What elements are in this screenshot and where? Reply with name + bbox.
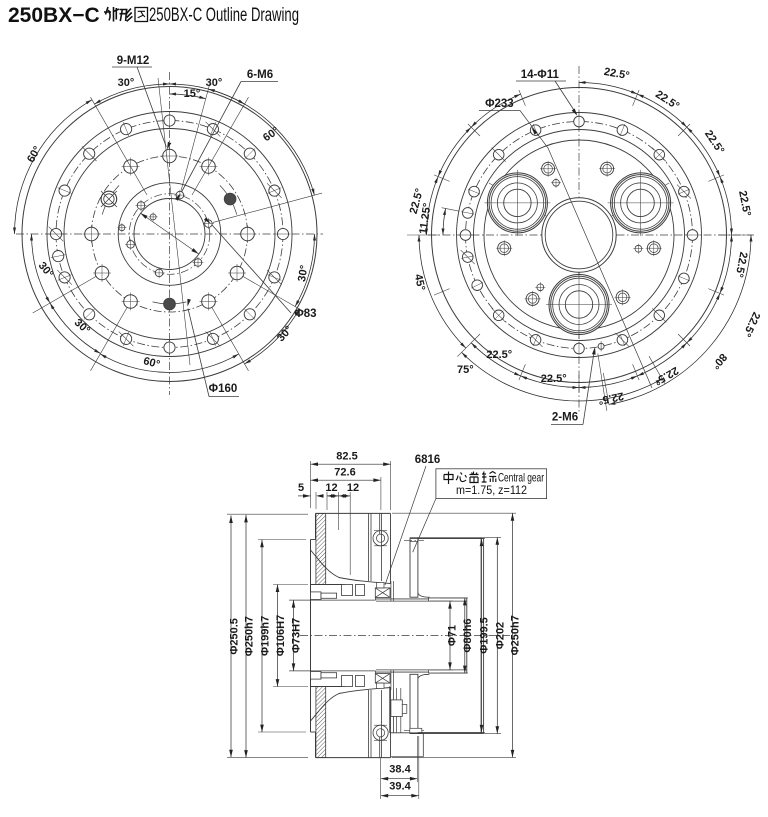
svg-text:82.5: 82.5 [336,451,357,463]
svg-text:14-Φ11: 14-Φ11 [521,69,560,81]
svg-text:250BX−C: 250BX−C [8,4,100,27]
svg-text:Φ73H7: Φ73H7 [291,618,303,653]
svg-text:Φ160: Φ160 [209,383,238,395]
svg-text:5: 5 [298,482,304,494]
svg-text:Φ199h7: Φ199h7 [260,616,272,656]
svg-text:75°: 75° [457,364,474,376]
svg-text:Φ202: Φ202 [494,622,506,649]
svg-text:Φ199.5: Φ199.5 [479,617,491,654]
svg-text:12: 12 [325,482,337,494]
svg-text:9-M12: 9-M12 [117,55,150,67]
svg-text:Φ83: Φ83 [294,308,316,320]
svg-text:30°: 30° [118,77,135,89]
svg-text:Φ80h6: Φ80h6 [462,618,474,652]
svg-text:Φ71: Φ71 [447,625,459,646]
svg-text:6816: 6816 [415,454,441,466]
svg-text:m=1.75, z=112: m=1.75, z=112 [456,483,527,497]
svg-text:Φ250h7: Φ250h7 [244,616,256,656]
svg-text:22.5°: 22.5° [541,373,567,385]
svg-text:30°: 30° [206,77,223,89]
svg-text:22.5°: 22.5° [486,349,512,361]
svg-text:12: 12 [347,482,359,494]
svg-text:39.4: 39.4 [389,781,411,793]
svg-text:Φ250.5: Φ250.5 [229,618,241,655]
svg-text:15°: 15° [184,88,201,100]
svg-text:6-M6: 6-M6 [247,69,273,81]
svg-text:38.4: 38.4 [389,764,411,776]
svg-text:250BX-C Outline Drawing: 250BX-C Outline Drawing [149,5,299,26]
svg-text:72.6: 72.6 [334,467,355,479]
svg-text:Φ106H7: Φ106H7 [275,615,287,656]
svg-text:Φ250h7: Φ250h7 [510,615,522,655]
svg-text:Φ233: Φ233 [485,98,514,110]
svg-text:2-M6: 2-M6 [552,412,578,424]
